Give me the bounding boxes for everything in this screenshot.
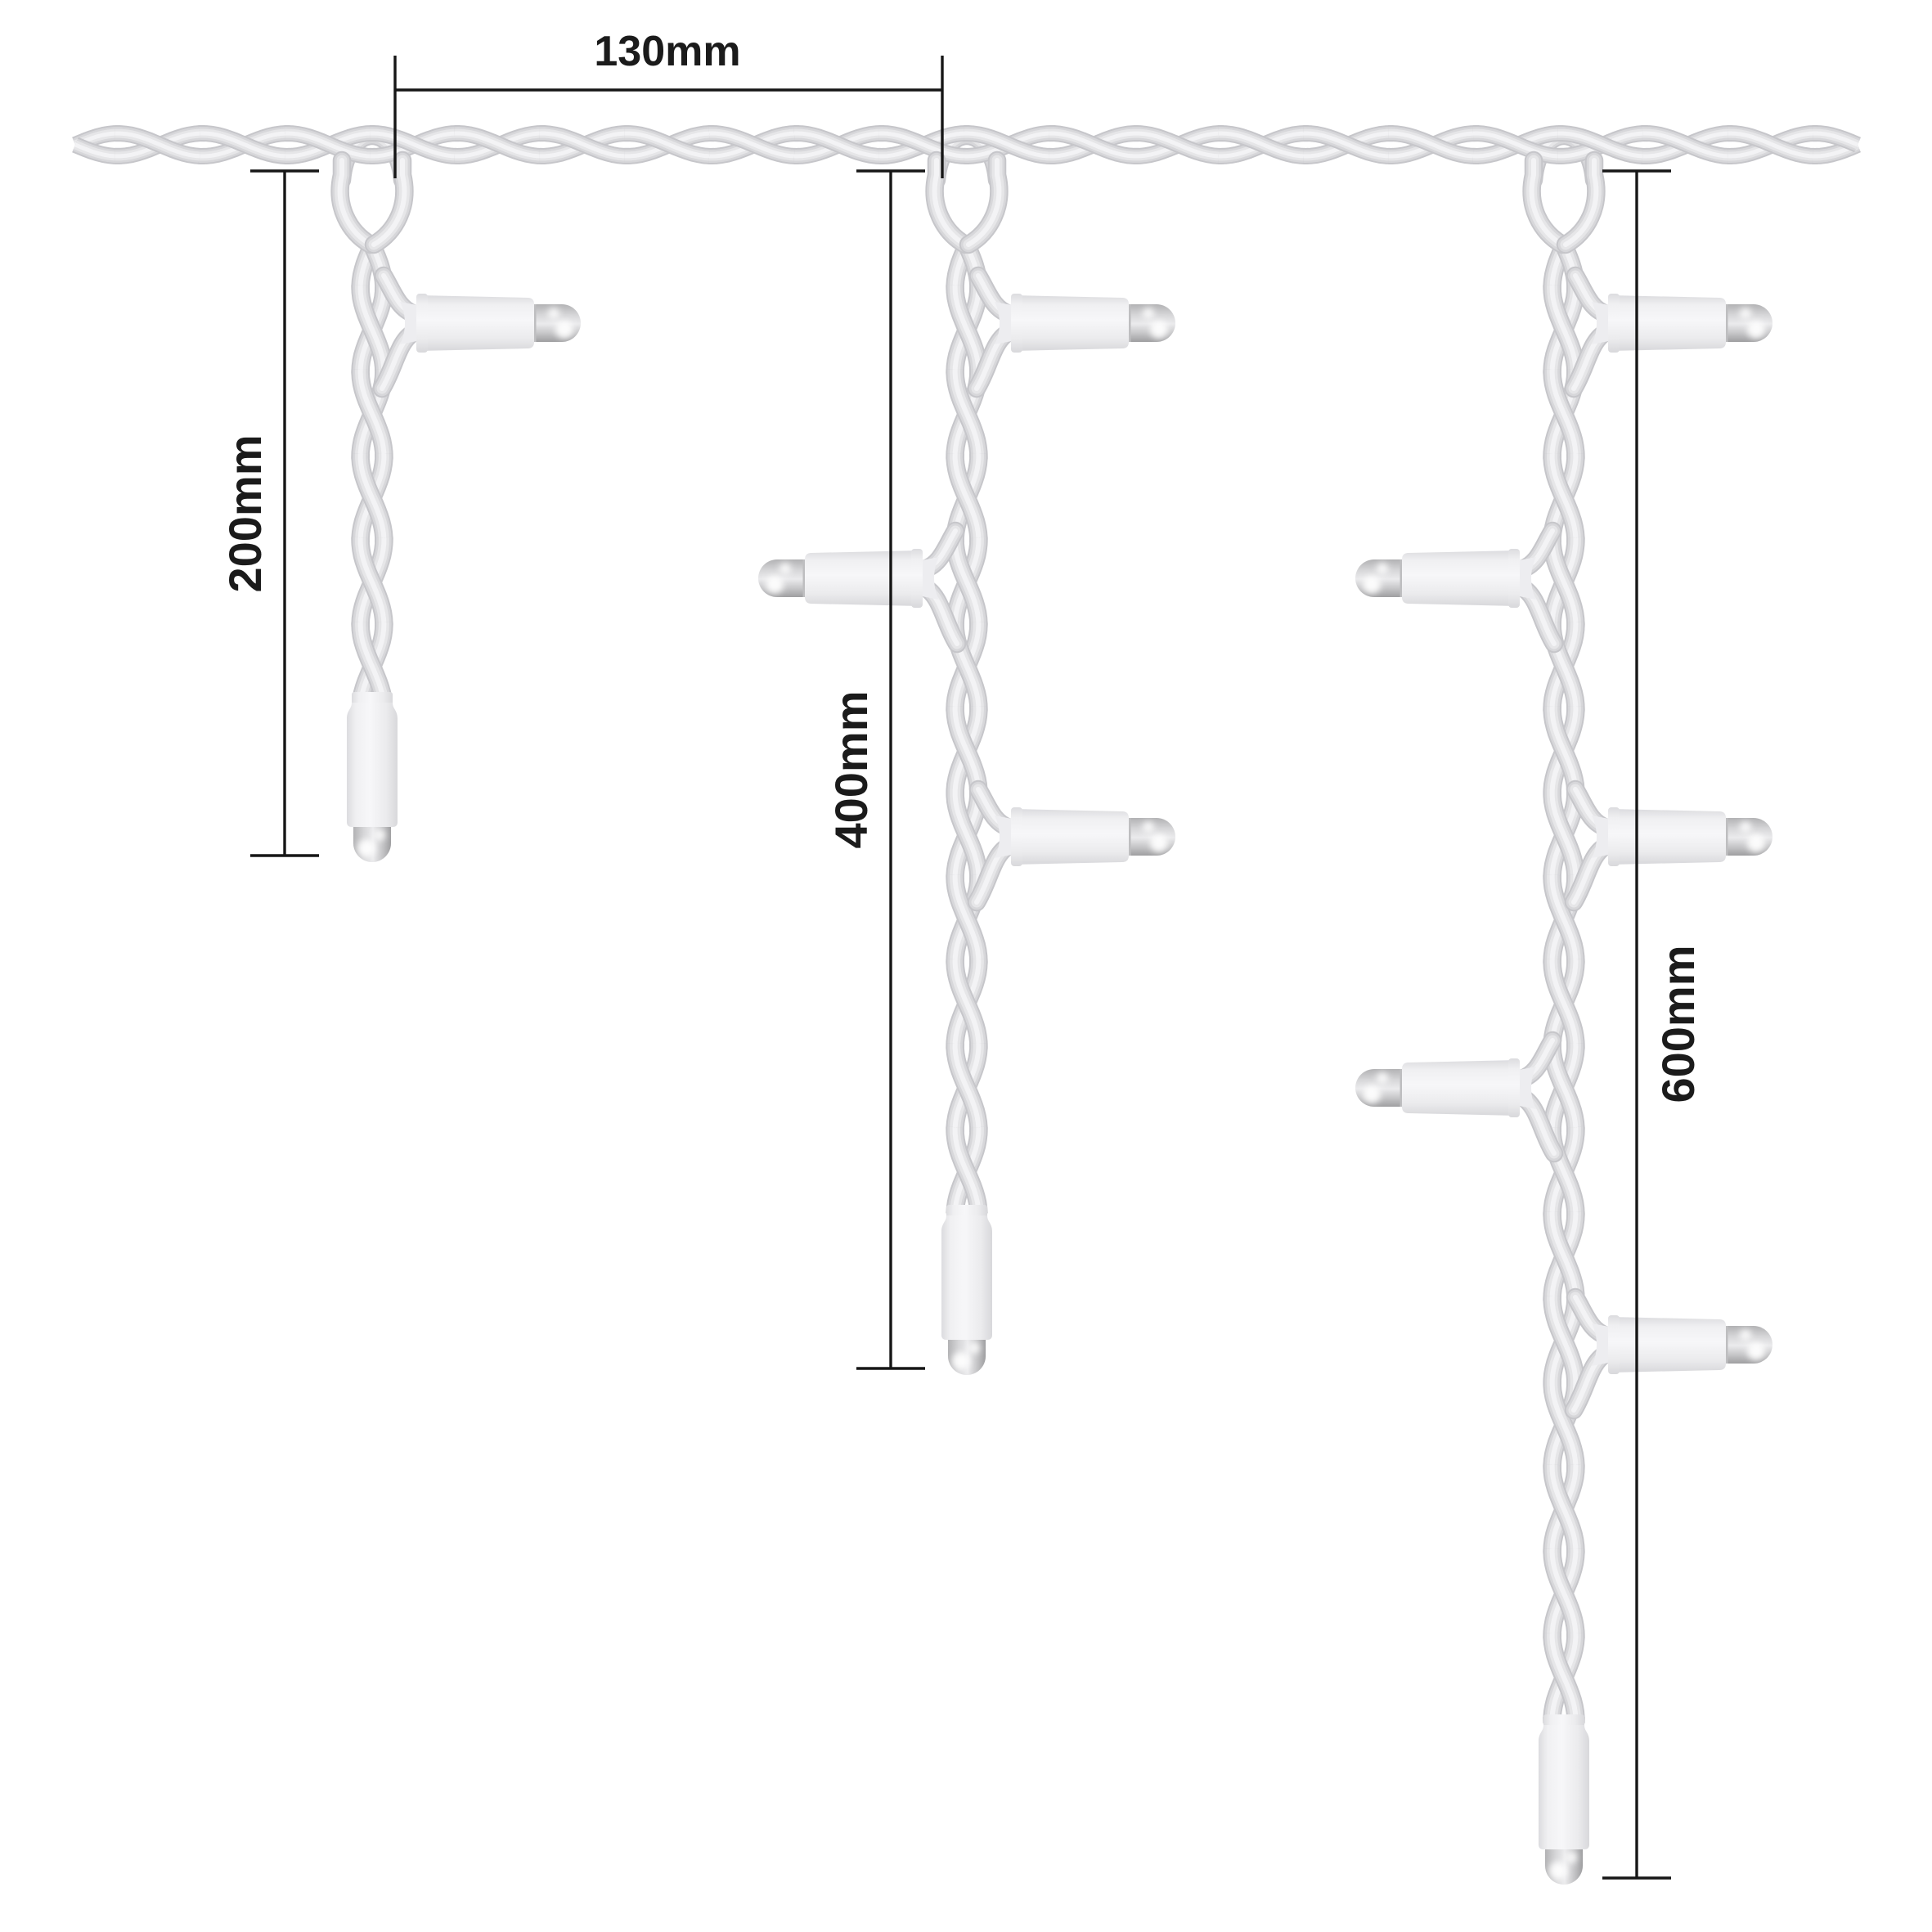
svg-text:200mm: 200mm xyxy=(219,434,271,592)
svg-text:600mm: 600mm xyxy=(1652,945,1704,1103)
svg-text:400mm: 400mm xyxy=(825,690,877,848)
svg-text:130mm: 130mm xyxy=(594,28,740,75)
